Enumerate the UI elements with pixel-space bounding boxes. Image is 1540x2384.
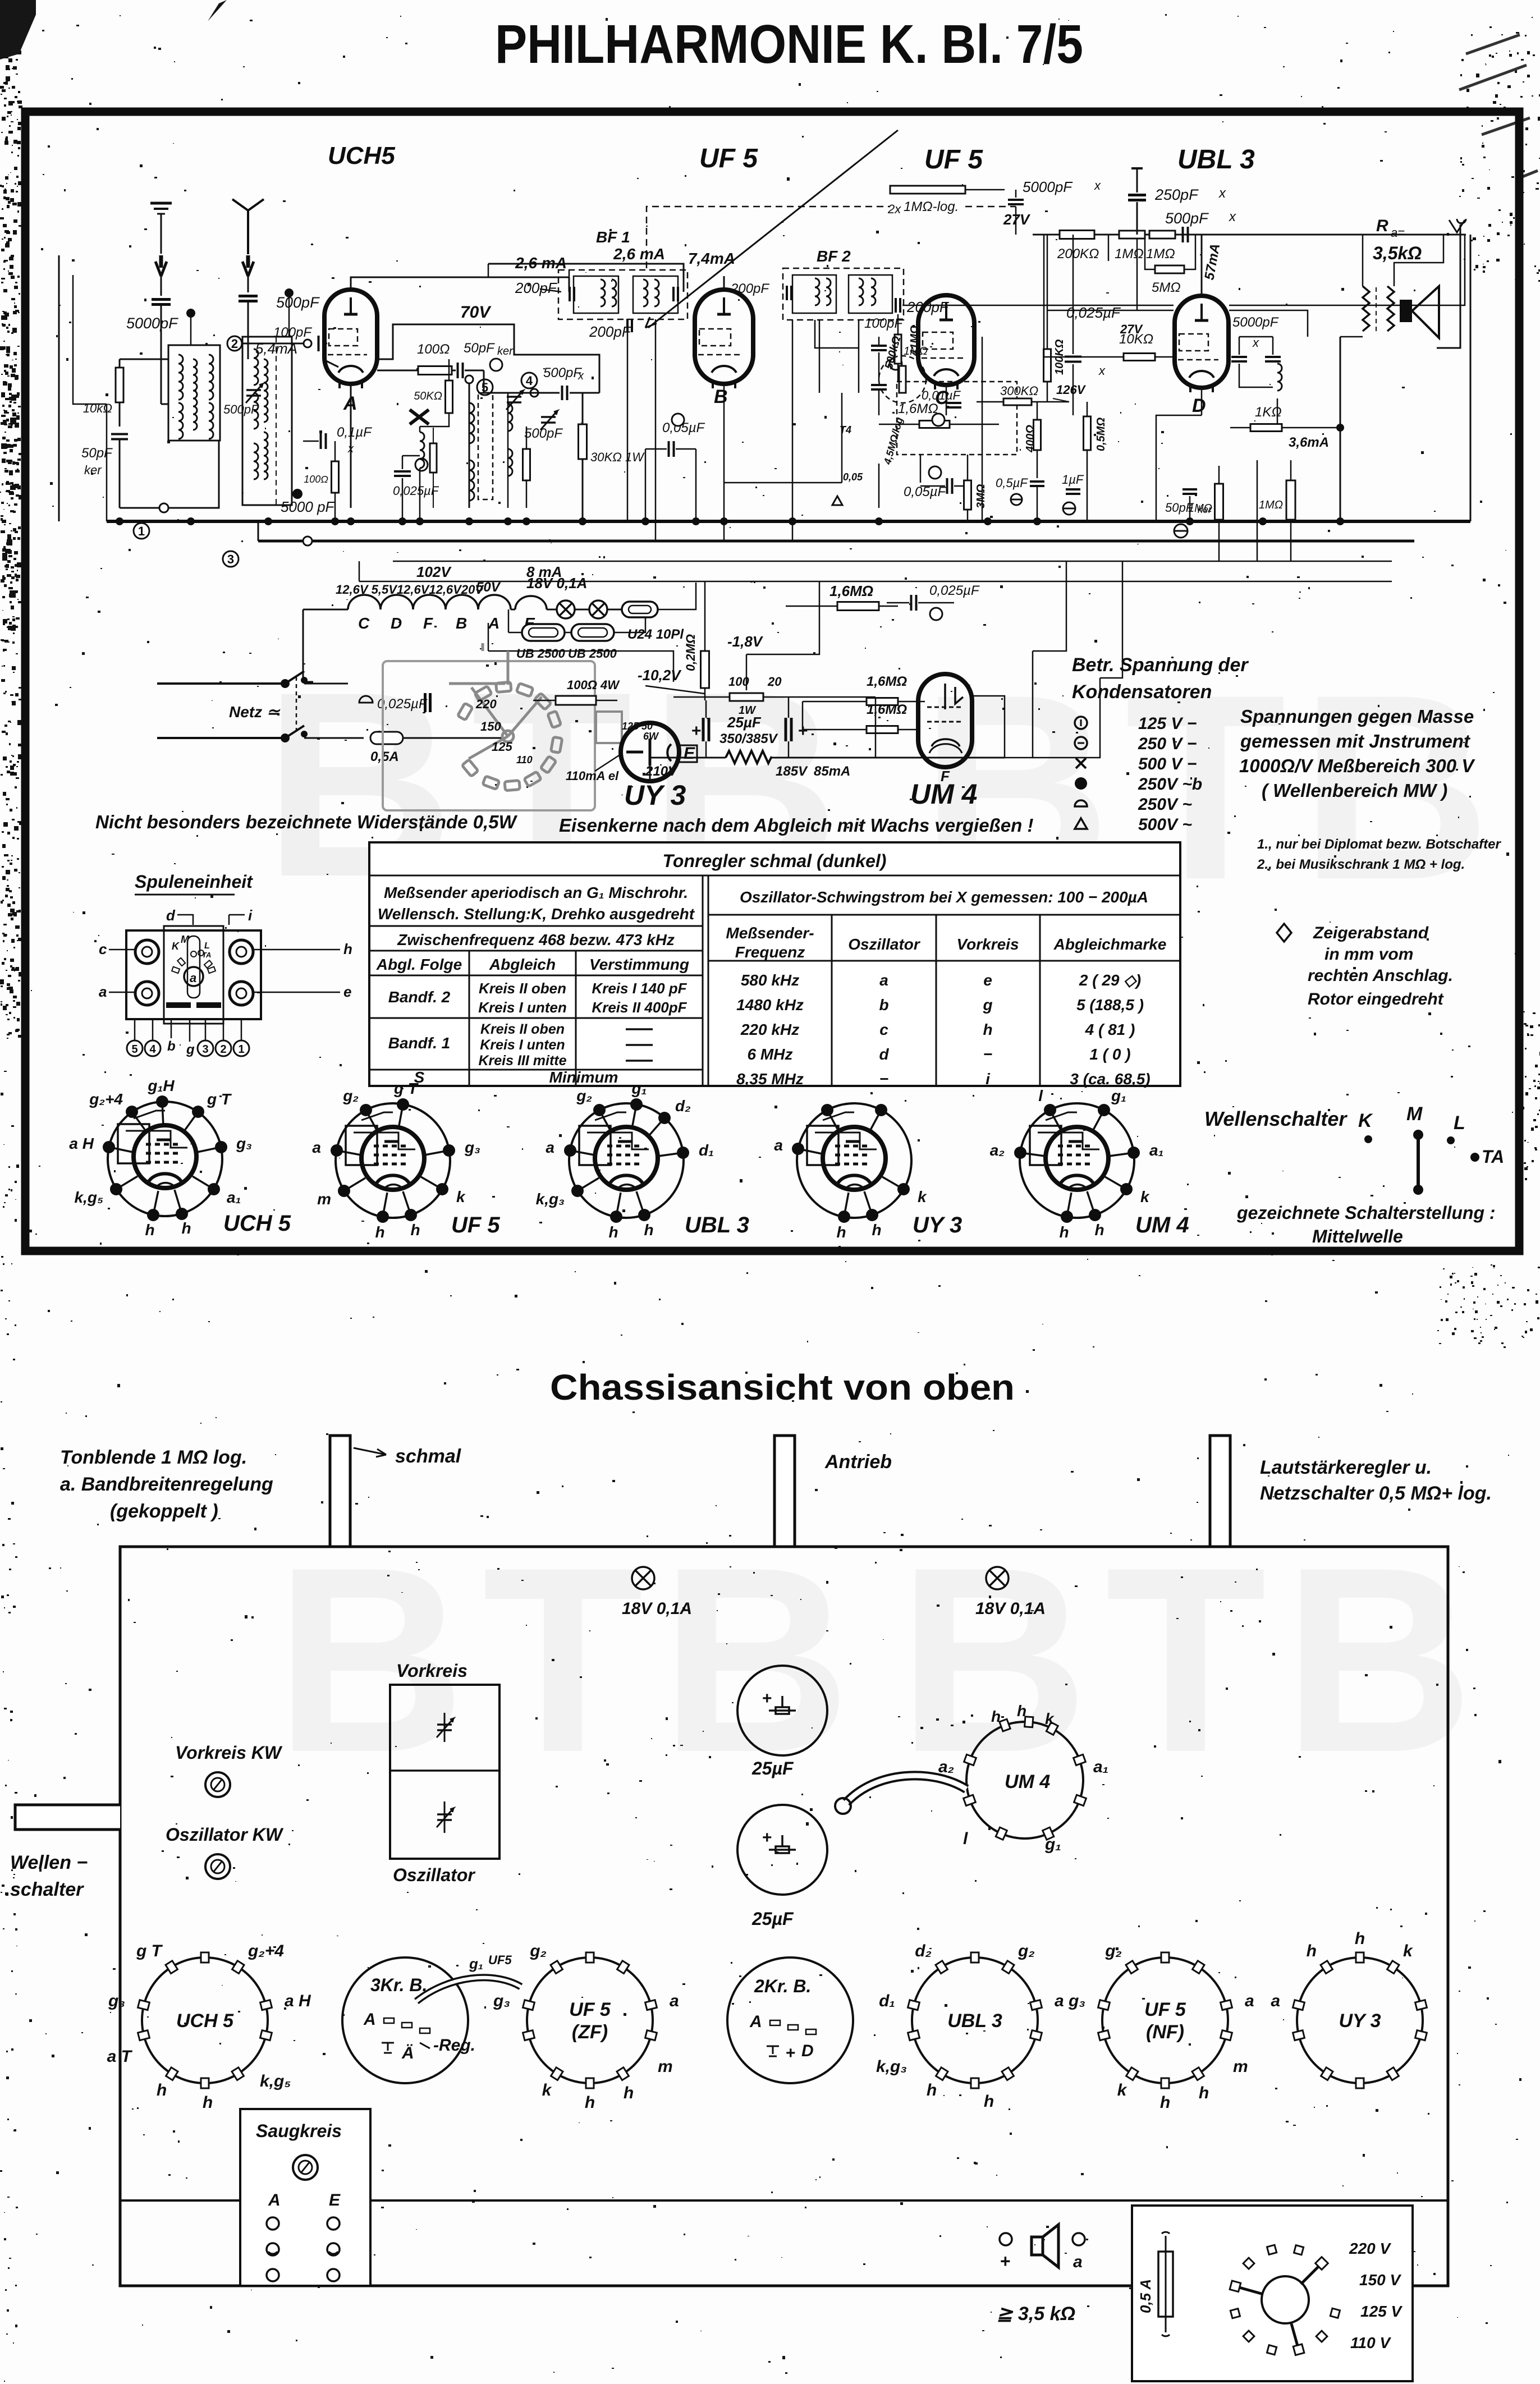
svg-text:6 MHz: 6 MHz xyxy=(748,1046,793,1063)
svg-text:50KΩ: 50KΩ xyxy=(414,390,442,402)
svg-text:Kreis III mitte: Kreis III mitte xyxy=(479,1053,567,1069)
svg-text:UBL 3: UBL 3 xyxy=(685,1213,749,1237)
svg-text:h: h xyxy=(1160,2093,1170,2112)
svg-text:Vorkreis: Vorkreis xyxy=(956,936,1019,953)
svg-text:g₁: g₁ xyxy=(1111,1087,1126,1104)
svg-text:18V 0,1A: 18V 0,1A xyxy=(526,575,587,592)
svg-text:h: h xyxy=(984,2092,994,2111)
svg-text:100Ω: 100Ω xyxy=(304,474,328,485)
svg-text:g₂: g₂ xyxy=(576,1087,592,1104)
svg-text:Oszillator: Oszillator xyxy=(393,1865,475,1885)
svg-text:d₁: d₁ xyxy=(879,1992,895,2010)
svg-text:1MΩ: 1MΩ xyxy=(1115,246,1144,262)
svg-text:1., nur bei Diplomat bezw. Bot: 1., nur bei Diplomat bezw. Botschafter xyxy=(1257,837,1502,852)
svg-text:h: h xyxy=(343,941,352,957)
svg-text:h: h xyxy=(927,2081,937,2099)
svg-text:Kondensatoren: Kondensatoren xyxy=(1072,681,1212,703)
svg-text:500pF: 500pF xyxy=(543,365,582,380)
svg-text:3MΩ: 3MΩ xyxy=(975,484,987,508)
svg-text:100: 100 xyxy=(728,675,749,689)
svg-text:ker: ker xyxy=(84,463,102,477)
svg-text:Vorkreis KW: Vorkreis KW xyxy=(175,1743,283,1763)
svg-text:580 kHz: 580 kHz xyxy=(741,971,799,989)
svg-text:h: h xyxy=(624,2084,634,2102)
svg-text:d₂: d₂ xyxy=(675,1097,691,1115)
svg-text:1,6MΩ: 1,6MΩ xyxy=(867,674,907,689)
svg-text:UCH5: UCH5 xyxy=(328,142,395,169)
svg-text:5000 pF: 5000 pF xyxy=(281,498,336,515)
svg-text:g₂: g₂ xyxy=(1017,1942,1035,1960)
svg-text:Antrieb: Antrieb xyxy=(824,1451,892,1473)
svg-text:c: c xyxy=(99,941,107,957)
svg-text:k: k xyxy=(456,1188,466,1205)
svg-text:BTB: BTB xyxy=(898,1512,1491,1807)
svg-text:UM 4: UM 4 xyxy=(910,778,977,810)
svg-text:i: i xyxy=(986,1070,991,1088)
svg-text:UBL 3: UBL 3 xyxy=(1177,145,1255,175)
svg-text:k,g₃: k,g₃ xyxy=(876,2057,907,2076)
svg-text:+: + xyxy=(762,1828,772,1847)
svg-text:UCH 5: UCH 5 xyxy=(176,2010,234,2032)
svg-text:300KΩ: 300KΩ xyxy=(1000,384,1038,398)
svg-text:k,g₅: k,g₅ xyxy=(74,1189,103,1206)
svg-text:c: c xyxy=(879,1021,888,1038)
svg-text:220 kHz: 220 kHz xyxy=(740,1021,799,1038)
svg-text:a: a xyxy=(879,971,888,989)
svg-text:e: e xyxy=(343,983,351,1000)
svg-text:UF5: UF5 xyxy=(488,1953,512,1967)
svg-text:+: + xyxy=(762,1689,772,1708)
svg-text:126V: 126V xyxy=(1056,383,1087,397)
svg-text:K: K xyxy=(1358,1110,1373,1131)
svg-text:g₂+4: g₂+4 xyxy=(247,1942,284,1960)
svg-text:D: D xyxy=(801,2042,814,2060)
svg-text:8,35 MHz: 8,35 MHz xyxy=(736,1070,804,1088)
svg-text:200pF: 200pF xyxy=(730,281,769,296)
svg-text:a H: a H xyxy=(69,1135,94,1152)
svg-text:h: h xyxy=(157,2081,167,2099)
svg-text:Zwischenfrequenz 468 bezw. 473: Zwischenfrequenz 468 bezw. 473 kHz xyxy=(397,931,675,948)
svg-text:g T: g T xyxy=(207,1090,232,1108)
svg-text:k: k xyxy=(918,1188,927,1205)
svg-text:5MΩ: 5MΩ xyxy=(1152,280,1181,295)
svg-text:0,01µF: 0,01µF xyxy=(922,388,961,402)
svg-text:b: b xyxy=(879,996,888,1014)
svg-text:-1,8V: -1,8V xyxy=(727,633,764,650)
svg-text:Kreis I unten: Kreis I unten xyxy=(478,999,566,1016)
svg-text:Tonblende 1 MΩ log.: Tonblende 1 MΩ log. xyxy=(60,1447,247,1468)
svg-text:a: a xyxy=(546,1139,554,1156)
svg-text:1,6MΩ: 1,6MΩ xyxy=(867,702,907,717)
svg-text:Oszillator-Schwingstrom bei X: Oszillator-Schwingstrom bei X gemessen: … xyxy=(740,888,1148,906)
svg-text:M: M xyxy=(181,934,190,945)
svg-text:UB 2500: UB 2500 xyxy=(516,647,566,661)
svg-text:5: 5 xyxy=(131,1043,137,1056)
svg-text:Zeigerabstand: Zeigerabstand xyxy=(1313,924,1429,942)
svg-text:Tonregler schmal (dunkel): Tonregler schmal (dunkel) xyxy=(663,851,887,871)
svg-text:k: k xyxy=(542,2081,552,2099)
svg-text:h: h xyxy=(1355,1929,1365,1948)
svg-text:h: h xyxy=(644,1221,653,1239)
svg-text:125 V: 125 V xyxy=(1360,2303,1402,2320)
svg-text:27V: 27V xyxy=(1120,322,1143,336)
svg-text:200pF: 200pF xyxy=(515,279,558,296)
svg-text:g₂: g₂ xyxy=(529,1942,547,1960)
svg-text:schalter: schalter xyxy=(10,1879,84,1900)
svg-text:Abgl. Folge: Abgl. Folge xyxy=(376,956,462,973)
svg-text:C: C xyxy=(358,615,370,632)
svg-text:g T: g T xyxy=(393,1080,419,1097)
svg-text:0,1µF: 0,1µF xyxy=(337,425,372,440)
svg-text:250V ~b: 250V ~b xyxy=(1138,775,1202,794)
svg-text:a T: a T xyxy=(107,2047,133,2066)
svg-text:30KΩ 1W: 30KΩ 1W xyxy=(590,450,645,464)
svg-text:41MΩ: 41MΩ xyxy=(909,325,921,356)
svg-text:A: A xyxy=(268,2191,281,2209)
svg-text:Wellenschalter: Wellenschalter xyxy=(1204,1107,1347,1130)
svg-text:Spannungen gegen Masse: Spannungen gegen Masse xyxy=(1240,706,1474,727)
svg-text:d₂: d₂ xyxy=(915,1942,932,1960)
svg-text:Betr. Spannung der: Betr. Spannung der xyxy=(1072,654,1249,676)
svg-text:e: e xyxy=(983,971,992,989)
svg-text:UF 5: UF 5 xyxy=(1144,1999,1186,2020)
svg-text:5000pF: 5000pF xyxy=(126,315,178,332)
svg-text:a₁: a₁ xyxy=(1149,1141,1163,1159)
svg-text:150: 150 xyxy=(480,719,501,733)
svg-text:2Kr. B.: 2Kr. B. xyxy=(754,1976,811,1996)
svg-text:500V ~: 500V ~ xyxy=(1138,815,1192,834)
svg-text:100Ω 4W: 100Ω 4W xyxy=(567,678,620,692)
svg-text:g₂: g₂ xyxy=(342,1087,359,1104)
svg-text:k,g₅: k,g₅ xyxy=(260,2072,291,2090)
svg-text:Meßsender-: Meßsender- xyxy=(726,924,814,942)
svg-text:Eisenkerne nach dem Abgleich m: Eisenkerne nach dem Abgleich mit Wachs v… xyxy=(559,815,1033,836)
svg-text:3: 3 xyxy=(202,1043,208,1056)
svg-text:2., bei Musikschrank 1 MΩ + l: 2., bei Musikschrank 1 MΩ + log. xyxy=(1257,857,1465,872)
svg-text:6W: 6W xyxy=(643,731,659,742)
svg-text:ker: ker xyxy=(497,345,514,357)
svg-text:x: x xyxy=(1094,178,1101,192)
svg-text:Bandf. 1: Bandf. 1 xyxy=(388,1034,450,1052)
svg-text:Kreis II 400pF: Kreis II 400pF xyxy=(592,999,687,1016)
svg-text:Verstimmung: Verstimmung xyxy=(589,956,689,973)
svg-text:h: h xyxy=(181,1219,191,1237)
svg-text:350/385V: 350/385V xyxy=(719,731,778,746)
svg-text:x: x xyxy=(1098,364,1106,378)
svg-text:UM 4: UM 4 xyxy=(1135,1213,1189,1237)
svg-text:1480 kHz: 1480 kHz xyxy=(736,996,804,1014)
svg-text:h: h xyxy=(872,1221,881,1239)
svg-text:70V: 70V xyxy=(460,303,492,322)
svg-text:UCH 5: UCH 5 xyxy=(223,1211,291,1236)
svg-text:A: A xyxy=(488,615,499,632)
svg-text:h: h xyxy=(1199,2084,1209,2102)
svg-text:50pF: 50pF xyxy=(464,341,495,356)
svg-text:TA: TA xyxy=(1482,1147,1504,1167)
svg-text:h: h xyxy=(203,2093,213,2112)
svg-text:Lautstärkeregler u.: Lautstärkeregler u. xyxy=(1260,1457,1432,1478)
svg-text:25µF: 25µF xyxy=(751,1758,794,1778)
svg-text:h: h xyxy=(991,1708,1001,1725)
svg-text:gemessen mit Jnstrument: gemessen mit Jnstrument xyxy=(1240,731,1471,751)
svg-text:250V ~: 250V ~ xyxy=(1138,795,1192,814)
svg-text:Oszillator KW: Oszillator KW xyxy=(166,1824,284,1845)
svg-text:a: a xyxy=(1073,2253,1083,2271)
svg-text:0,05: 0,05 xyxy=(843,471,863,483)
svg-text:a: a xyxy=(1245,1992,1254,2010)
svg-text:0,2MΩ: 0,2MΩ xyxy=(684,634,698,671)
svg-text:50pF: 50pF xyxy=(81,446,113,461)
svg-text:M: M xyxy=(1406,1103,1423,1125)
svg-text:Wellen −: Wellen − xyxy=(10,1852,88,1873)
svg-text:18V 0,1A: 18V 0,1A xyxy=(975,1599,1046,1618)
svg-text:185V: 185V xyxy=(776,764,808,779)
svg-text:200KΩ: 200KΩ xyxy=(1057,246,1099,262)
svg-text:3 (ca. 68,5): 3 (ca. 68,5) xyxy=(1070,1070,1150,1088)
svg-text:(NF): (NF) xyxy=(1146,2021,1184,2043)
svg-text:UF 5: UF 5 xyxy=(569,1999,611,2020)
svg-text:3,6mA: 3,6mA xyxy=(1289,435,1329,450)
svg-text:0,025µF: 0,025µF xyxy=(393,484,439,498)
svg-text:125: 125 xyxy=(492,740,512,754)
svg-text:A: A xyxy=(749,2012,762,2031)
svg-text:h: h xyxy=(410,1221,420,1239)
svg-text:BF 2: BF 2 xyxy=(817,247,851,265)
svg-text:Netzschalter 0,5 MΩ+ log.: Netzschalter 0,5 MΩ+ log. xyxy=(1260,1483,1492,1504)
svg-text:g₃: g₃ xyxy=(493,1992,510,2010)
svg-text:5000pF: 5000pF xyxy=(1232,315,1279,330)
svg-text:k: k xyxy=(1045,1710,1055,1727)
svg-text:85mA: 85mA xyxy=(814,764,850,779)
svg-text:1: 1 xyxy=(138,524,145,538)
svg-text:Abgleich: Abgleich xyxy=(489,956,556,973)
svg-text:d₁: d₁ xyxy=(699,1141,714,1159)
svg-text:R: R xyxy=(1376,217,1388,235)
svg-text:x: x xyxy=(577,370,584,382)
svg-text:B: B xyxy=(714,386,728,407)
svg-text:Rotor eingedreht: Rotor eingedreht xyxy=(1308,990,1445,1008)
svg-text:27V: 27V xyxy=(1003,211,1031,228)
svg-text:F: F xyxy=(423,615,433,632)
svg-text:UBL 3: UBL 3 xyxy=(947,2010,1002,2032)
svg-text:m: m xyxy=(658,2057,673,2076)
svg-text:d: d xyxy=(166,907,176,924)
svg-text:h: h xyxy=(983,1021,992,1038)
svg-text:a: a xyxy=(99,983,107,1000)
svg-text:25µF: 25µF xyxy=(751,1909,794,1929)
svg-text:U24 10Pl: U24 10Pl xyxy=(627,627,684,642)
svg-text:m: m xyxy=(1233,2057,1248,2076)
svg-text:20: 20 xyxy=(767,675,782,689)
svg-text:4 ( 81 ): 4 ( 81 ) xyxy=(1085,1021,1135,1038)
svg-text:−: − xyxy=(983,1046,992,1063)
svg-text:k: k xyxy=(1403,1942,1413,1960)
svg-text:rechten Anschlag.: rechten Anschlag. xyxy=(1308,966,1453,985)
svg-text:5 (188,5 ): 5 (188,5 ) xyxy=(1076,996,1144,1014)
svg-text:k: k xyxy=(1140,1188,1150,1205)
svg-text:100Ω: 100Ω xyxy=(417,342,450,357)
svg-text:2: 2 xyxy=(231,337,238,351)
svg-text:Oszillator: Oszillator xyxy=(848,936,921,953)
svg-text:2 ( 29 ◇): 2 ( 29 ◇) xyxy=(1079,971,1141,989)
svg-text:g₂: g₂ xyxy=(1104,1942,1122,1960)
svg-text:D: D xyxy=(391,615,402,632)
svg-text:250 V −: 250 V − xyxy=(1138,735,1197,753)
svg-text:500pF: 500pF xyxy=(223,402,259,416)
svg-text:d: d xyxy=(879,1046,889,1063)
svg-text:h: h xyxy=(1307,1942,1317,1960)
svg-text:L: L xyxy=(1454,1112,1465,1134)
svg-text:25µF: 25µF xyxy=(727,714,762,731)
svg-text:a: a xyxy=(670,1992,679,2010)
svg-text:gezeichnete Schalterstellung: gezeichnete Schalterstellung : xyxy=(1236,1203,1496,1223)
svg-text:Kreis II oben: Kreis II oben xyxy=(480,1021,565,1037)
svg-text:k,g₃: k,g₃ xyxy=(536,1190,565,1208)
svg-text:0,025µF: 0,025µF xyxy=(929,583,980,598)
svg-text:PHILHARMONIE K. Bl. 7/5: PHILHARMONIE K. Bl. 7/5 xyxy=(495,13,1083,75)
svg-text:g₁: g₁ xyxy=(631,1080,647,1097)
svg-text:b: b xyxy=(167,1039,176,1054)
svg-text:in mm vom: in mm vom xyxy=(1324,945,1413,964)
svg-text:a=: a= xyxy=(1391,226,1405,240)
svg-text:x: x xyxy=(1229,209,1236,224)
svg-text:-10,2V: -10,2V xyxy=(638,667,682,684)
svg-text:Kreis II oben: Kreis II oben xyxy=(479,980,566,997)
svg-text:18V 0,1A: 18V 0,1A xyxy=(622,1599,692,1618)
svg-text:5,4mA: 5,4mA xyxy=(255,340,297,357)
svg-text:(gekoppelt ): (gekoppelt ) xyxy=(110,1501,218,1522)
svg-text:h: h xyxy=(836,1223,846,1241)
svg-text:500pF: 500pF xyxy=(524,426,563,441)
svg-text:200pF: 200pF xyxy=(589,323,632,340)
svg-text:Vorkreis: Vorkreis xyxy=(396,1661,467,1681)
svg-text:a₁: a₁ xyxy=(227,1189,241,1206)
svg-text:110mA el: 110mA el xyxy=(566,769,619,783)
svg-text:3Kr. B.: 3Kr. B. xyxy=(370,1975,427,1995)
svg-text:3: 3 xyxy=(227,552,234,566)
svg-text:g₁H: g₁H xyxy=(147,1077,175,1094)
svg-text:1MΩ: 1MΩ xyxy=(1259,499,1283,511)
svg-text:Mittelwelle: Mittelwelle xyxy=(1312,1226,1403,1246)
svg-text:+: + xyxy=(1000,2251,1011,2271)
svg-text:150 V: 150 V xyxy=(1359,2271,1401,2289)
svg-text:220: 220 xyxy=(475,697,497,711)
svg-text:Bandf. 2: Bandf. 2 xyxy=(388,988,451,1006)
svg-text:a₂: a₂ xyxy=(938,1758,954,1776)
svg-text:h: h xyxy=(1094,1221,1104,1239)
svg-text:Kreis I unten: Kreis I unten xyxy=(480,1037,565,1053)
svg-text:110 V: 110 V xyxy=(1350,2334,1391,2351)
svg-text:1000Ω/V Meßbereich 300 V: 1000Ω/V Meßbereich 300 V xyxy=(1239,755,1475,776)
svg-text:2x: 2x xyxy=(887,202,901,216)
svg-text:Netz ≃: Netz ≃ xyxy=(229,703,281,721)
svg-text:h: h xyxy=(1059,1223,1069,1241)
svg-text:Ä: Ä xyxy=(401,2044,414,2062)
svg-text:x: x xyxy=(1252,336,1259,350)
svg-text:250pF: 250pF xyxy=(1154,186,1199,203)
svg-text:220 V: 220 V xyxy=(1349,2240,1391,2257)
svg-text:h: h xyxy=(1017,1702,1026,1720)
svg-text:x: x xyxy=(347,443,354,455)
svg-text:1: 1 xyxy=(238,1043,244,1056)
svg-text:1µF: 1µF xyxy=(1062,473,1084,487)
svg-text:5000pF: 5000pF xyxy=(1023,178,1073,195)
svg-text:a: a xyxy=(190,971,196,985)
svg-text:102V: 102V xyxy=(416,563,452,580)
svg-text:UB 2500: UB 2500 xyxy=(568,647,617,661)
svg-text:a. Bandbreitenregelung: a. Bandbreitenregelung xyxy=(60,1474,273,1495)
svg-text:K: K xyxy=(172,941,180,952)
svg-text:0,5A: 0,5A xyxy=(370,749,399,764)
svg-text:7,4mA: 7,4mA xyxy=(688,250,735,267)
svg-text:UY 3: UY 3 xyxy=(1339,2010,1381,2032)
svg-text:125 V −: 125 V − xyxy=(1138,714,1197,733)
svg-text:4: 4 xyxy=(149,1043,156,1056)
svg-text:g₃: g₃ xyxy=(1068,1992,1085,2010)
svg-text:T4: T4 xyxy=(840,424,851,435)
svg-text:100pF: 100pF xyxy=(273,325,312,340)
svg-text:a₁: a₁ xyxy=(1093,1758,1108,1776)
svg-text:g: g xyxy=(186,1042,195,1057)
svg-text:a₂: a₂ xyxy=(990,1141,1005,1159)
svg-text:( Wellenbereich MW ): ( Wellenbereich MW ) xyxy=(1262,780,1447,801)
svg-text:Nicht besonders bezeichnete Wi: Nicht besonders bezeichnete Widerstände … xyxy=(95,812,518,832)
svg-text:h: h xyxy=(375,1223,384,1241)
svg-text:0,5 A: 0,5 A xyxy=(1137,2279,1154,2313)
svg-text:500pF: 500pF xyxy=(276,294,320,311)
svg-text:≧ 3,5 kΩ: ≧ 3,5 kΩ xyxy=(997,2303,1075,2325)
svg-text:1MΩ-log.: 1MΩ-log. xyxy=(904,199,959,214)
svg-text:E: E xyxy=(684,744,695,763)
svg-text:g₁: g₁ xyxy=(1044,1835,1061,1854)
svg-text:a: a xyxy=(312,1139,321,1156)
svg-text:Saugkreis: Saugkreis xyxy=(256,2121,342,2141)
svg-text:UM 4: UM 4 xyxy=(1005,1771,1050,1792)
svg-text:50V: 50V xyxy=(476,580,501,595)
svg-text:1MΩ: 1MΩ xyxy=(1188,502,1212,515)
svg-text:h: h xyxy=(585,2093,595,2112)
svg-text:a: a xyxy=(1271,1992,1280,2010)
svg-text:h: h xyxy=(145,1221,154,1239)
svg-text:Frequenz: Frequenz xyxy=(735,943,805,961)
svg-text:0,025µF: 0,025µF xyxy=(377,696,428,712)
svg-text:h: h xyxy=(608,1223,618,1241)
svg-text:E: E xyxy=(329,2191,341,2209)
svg-text:0,025µF: 0,025µF xyxy=(1066,304,1121,321)
svg-text:Meßsender aperiodisch an G₁ Mi: Meßsender aperiodisch an G₁ Mischrohr. xyxy=(384,884,688,901)
svg-text:UF 5: UF 5 xyxy=(924,145,983,175)
svg-text:D: D xyxy=(1192,395,1206,416)
svg-text:g₃: g₃ xyxy=(108,1992,125,2010)
svg-text:4: 4 xyxy=(526,374,533,388)
svg-text:a: a xyxy=(1055,1992,1064,2010)
svg-text:+: + xyxy=(786,2044,796,2062)
svg-text:2,6 mA: 2,6 mA xyxy=(613,245,665,263)
svg-text:l: l xyxy=(963,1830,968,1848)
svg-text:Kreis I 140 pF: Kreis I 140 pF xyxy=(592,980,687,997)
svg-text:UY 3: UY 3 xyxy=(913,1213,962,1237)
svg-text:1KΩ: 1KΩ xyxy=(1255,405,1282,420)
svg-text:l: l xyxy=(1038,1087,1043,1104)
svg-text:k: k xyxy=(1117,2081,1127,2099)
svg-text:+: + xyxy=(691,722,702,740)
svg-text:UF 5: UF 5 xyxy=(699,144,758,173)
svg-text:g₁: g₁ xyxy=(469,1955,483,1972)
svg-text:500 V −: 500 V − xyxy=(1138,755,1197,773)
svg-text:3,5kΩ: 3,5kΩ xyxy=(1373,243,1422,263)
svg-text:L: L xyxy=(204,941,210,951)
svg-text:Wellensch. Stellung:K, Drehko: Wellensch. Stellung:K, Drehko ausgedreht xyxy=(378,905,695,923)
